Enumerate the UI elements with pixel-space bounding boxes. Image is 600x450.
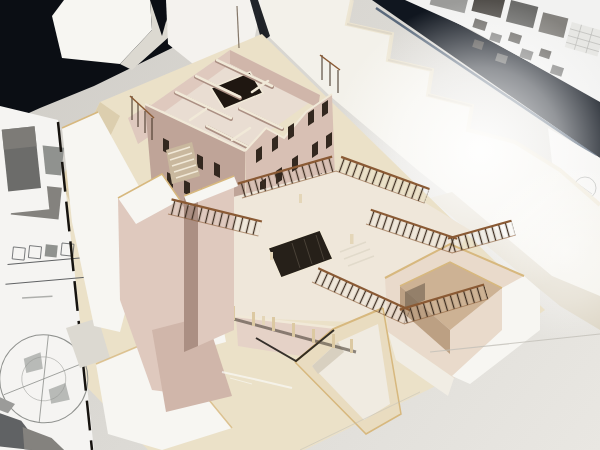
photo-architectural-model: [0, 0, 600, 450]
scene-canvas: [0, 0, 600, 450]
tower: [184, 176, 238, 352]
